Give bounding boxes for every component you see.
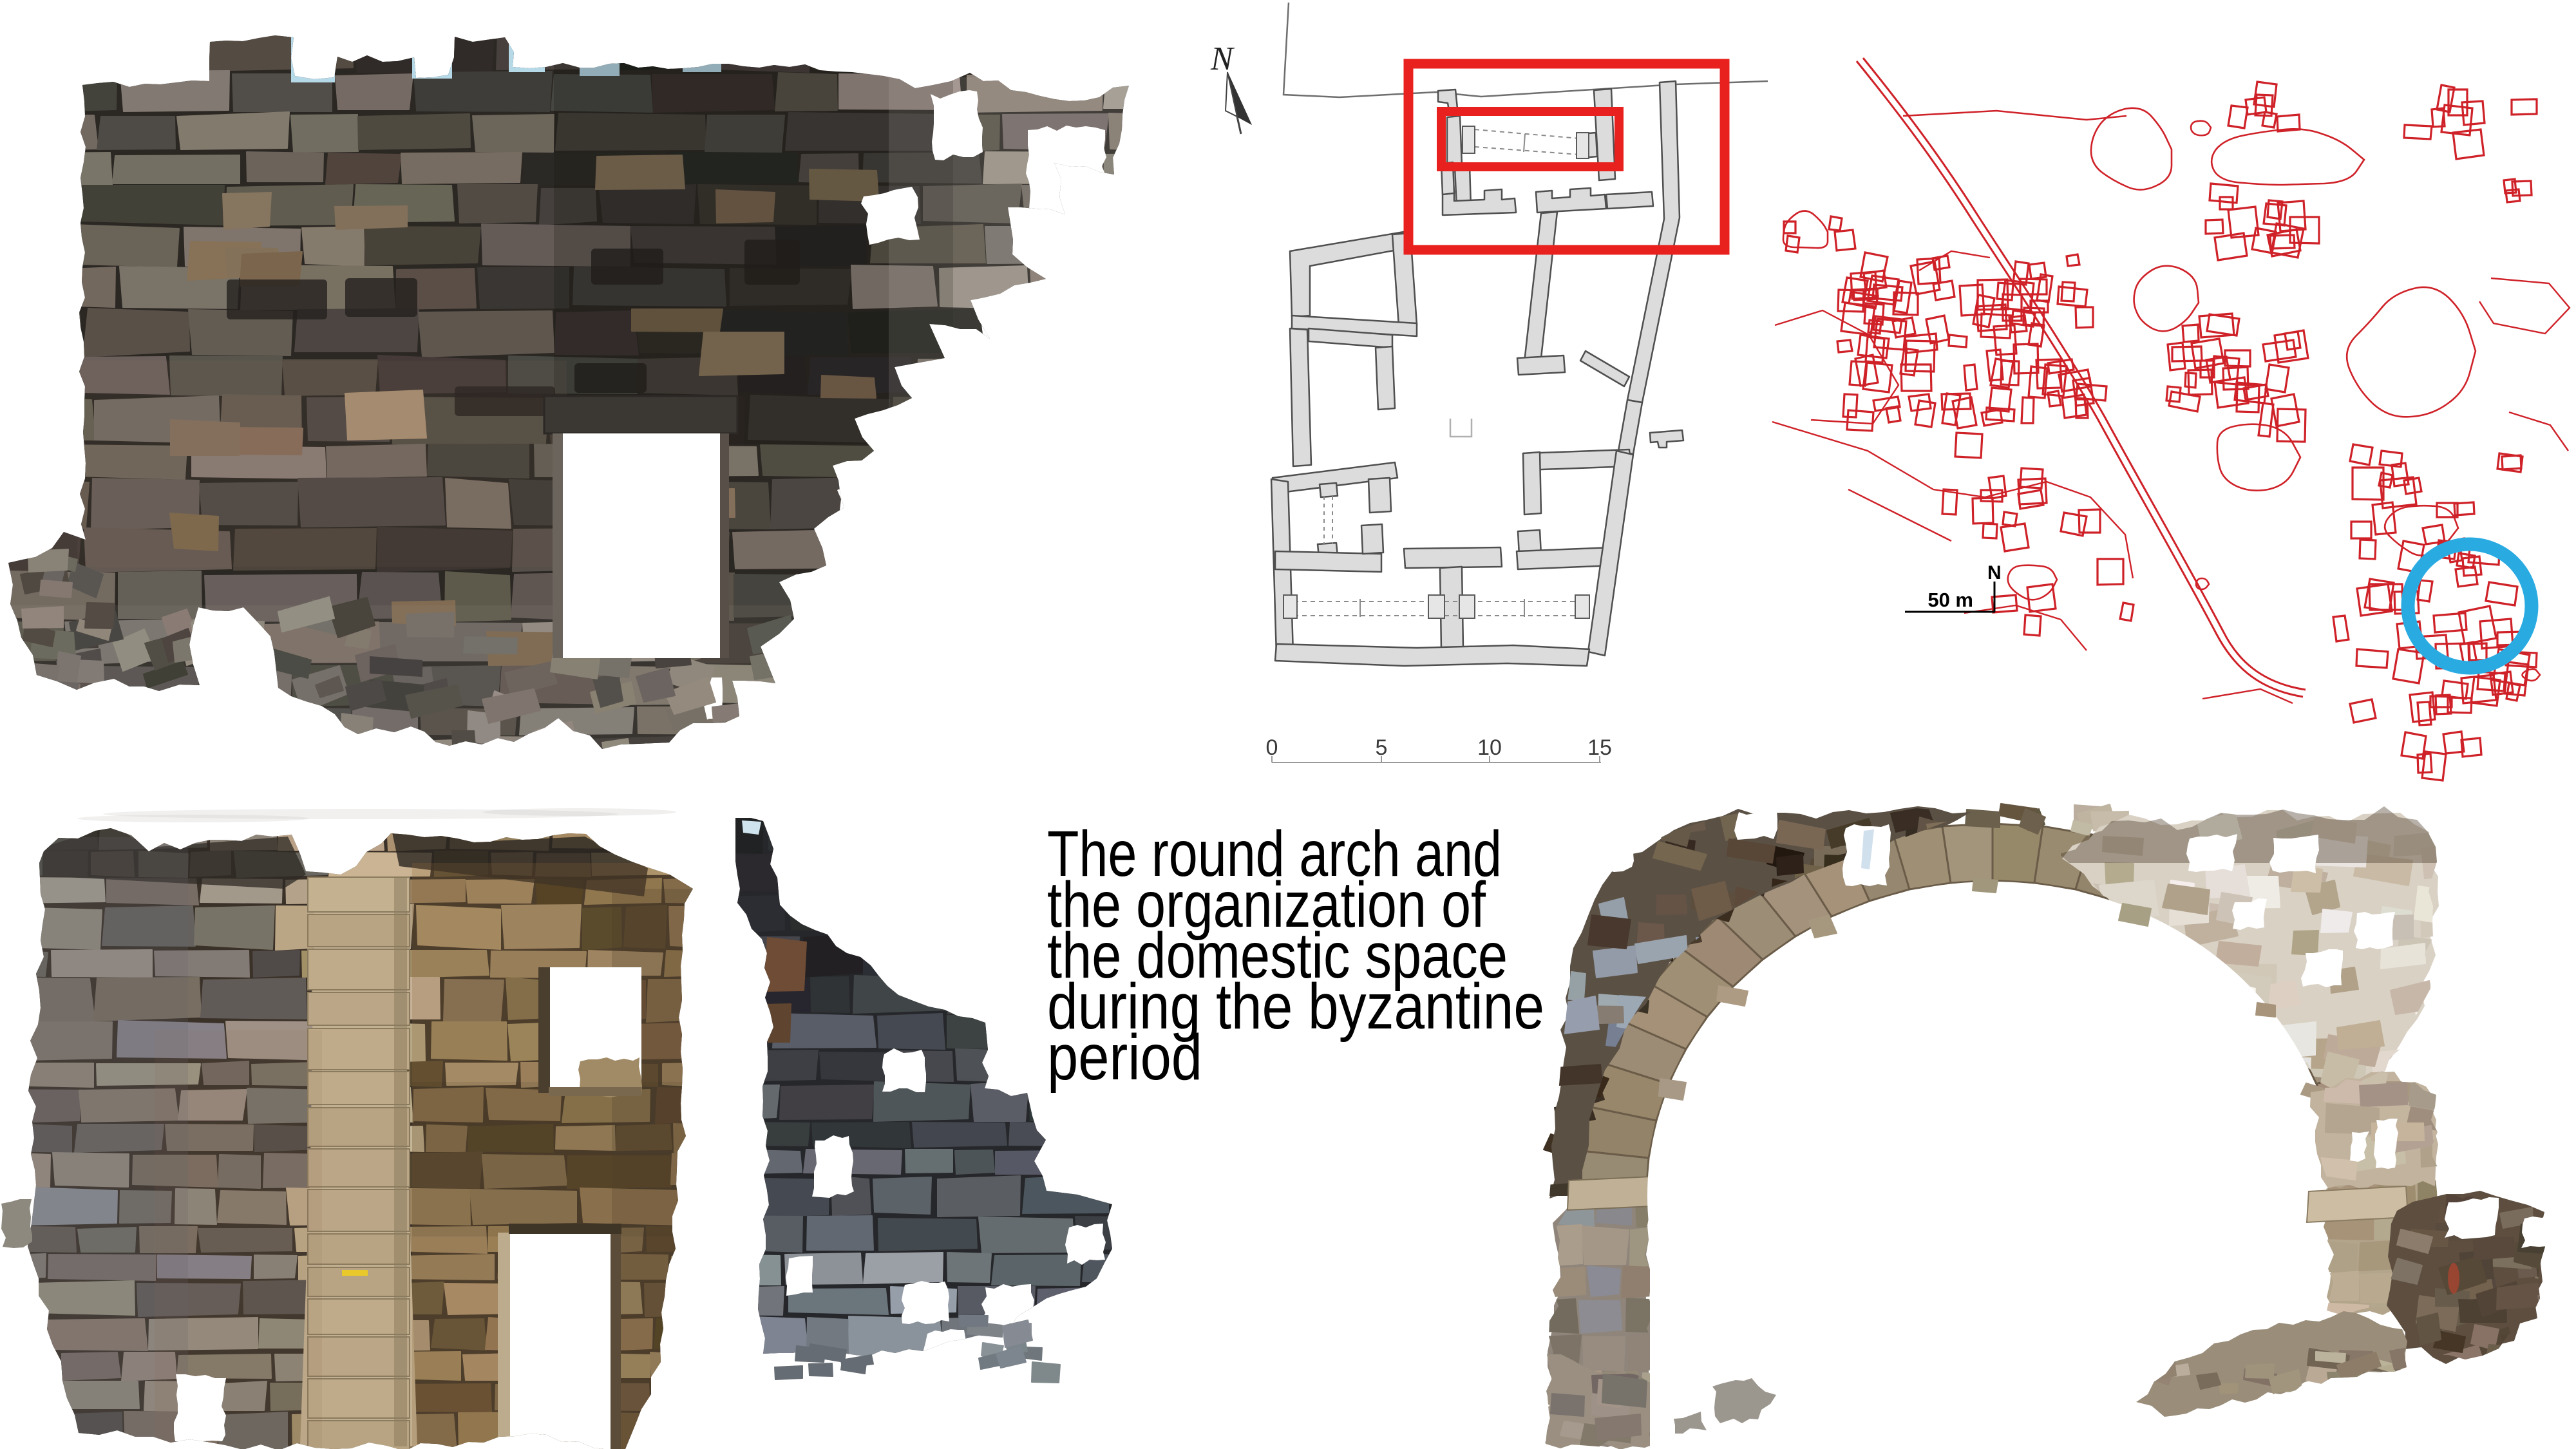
svg-text:N: N	[1987, 562, 2002, 583]
svg-text:N: N	[1210, 41, 1235, 77]
svg-text:period: period	[1047, 1021, 1202, 1094]
svg-text:50 m: 50 m	[1927, 589, 1973, 611]
